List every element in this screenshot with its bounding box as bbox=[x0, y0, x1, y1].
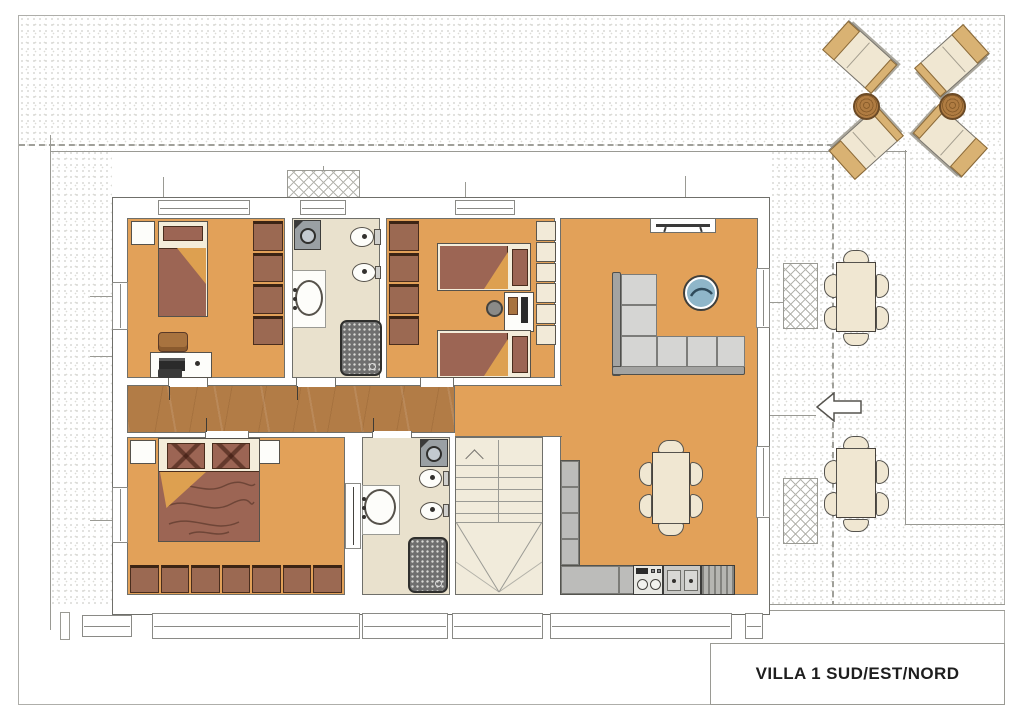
wardrobe-cell bbox=[252, 565, 281, 593]
window bbox=[82, 615, 132, 637]
boundary-line-left bbox=[50, 135, 51, 630]
sofa-seat bbox=[621, 274, 657, 305]
door-opening bbox=[372, 431, 412, 438]
plan-title: VILLA 1 SUD/EST/NORD bbox=[756, 664, 960, 684]
window bbox=[362, 613, 448, 639]
shower-drain bbox=[369, 363, 376, 370]
closet-shelves bbox=[536, 221, 556, 345]
double-bed bbox=[158, 438, 260, 542]
burner bbox=[650, 579, 661, 590]
stove-knob bbox=[657, 569, 661, 573]
window bbox=[300, 200, 346, 215]
drain bbox=[689, 579, 693, 583]
floor-plan: VILLA 1 SUD/EST/NORD bbox=[0, 0, 1024, 724]
shower bbox=[408, 537, 448, 593]
wardrobe bbox=[130, 565, 342, 593]
patio-chair bbox=[843, 436, 869, 449]
planter bbox=[783, 263, 818, 329]
chair bbox=[158, 369, 182, 378]
door-opening bbox=[420, 378, 454, 387]
window bbox=[152, 613, 360, 639]
leader-line bbox=[770, 415, 816, 416]
boundary-dashed-horizontal bbox=[19, 144, 833, 146]
single-bed bbox=[437, 243, 531, 291]
single-bed bbox=[437, 330, 531, 378]
planter bbox=[783, 478, 818, 544]
shelf-cell bbox=[536, 221, 556, 241]
toilet-tank bbox=[443, 471, 449, 486]
patio-chair bbox=[824, 274, 837, 298]
stair-winders bbox=[455, 522, 543, 594]
pillow bbox=[512, 249, 528, 286]
door-opening bbox=[168, 378, 208, 387]
tap bbox=[362, 497, 366, 501]
window bbox=[756, 268, 770, 328]
patio-chair bbox=[824, 492, 837, 516]
shelf-cell bbox=[536, 304, 556, 324]
round-side-table bbox=[939, 93, 966, 120]
wardrobe bbox=[253, 221, 283, 345]
wardrobe-cell bbox=[191, 565, 220, 593]
boundary-line-horizontal bbox=[50, 151, 907, 152]
window bbox=[452, 613, 543, 639]
bidet-fixture bbox=[443, 504, 449, 517]
entrance-arrow-icon bbox=[816, 392, 862, 422]
wardrobe-cell bbox=[389, 284, 419, 314]
window bbox=[112, 282, 128, 330]
patio-chair bbox=[843, 250, 869, 263]
stove-knob bbox=[651, 569, 655, 573]
door-opening bbox=[205, 431, 249, 438]
stair-divider bbox=[498, 440, 499, 522]
stove bbox=[633, 565, 663, 595]
desk bbox=[504, 292, 534, 332]
bidet-drain bbox=[362, 269, 367, 274]
shelf-cell bbox=[536, 283, 556, 303]
sofa-seat bbox=[687, 336, 717, 367]
wardrobe bbox=[389, 221, 419, 345]
step-stub bbox=[60, 612, 70, 640]
room-corridor bbox=[127, 385, 455, 433]
tap bbox=[362, 506, 366, 510]
dining-table bbox=[652, 452, 690, 524]
dining-chair bbox=[639, 494, 652, 518]
shower-drain bbox=[435, 580, 442, 587]
sofa-seat bbox=[621, 305, 657, 336]
dishwasher bbox=[701, 565, 735, 595]
deck-edge bbox=[770, 604, 1005, 611]
wardrobe-cell bbox=[253, 221, 283, 251]
sink bbox=[295, 280, 323, 316]
pillow bbox=[212, 443, 250, 469]
wardrobe-cell bbox=[389, 316, 419, 346]
wardrobe-cell bbox=[222, 565, 251, 593]
patio-chair bbox=[824, 460, 837, 484]
desk-lamp bbox=[508, 297, 518, 315]
wardrobe-cell bbox=[161, 565, 190, 593]
window bbox=[158, 200, 250, 215]
leader-line bbox=[90, 296, 112, 297]
window bbox=[756, 446, 770, 518]
toilet-drain bbox=[430, 475, 435, 480]
tap bbox=[362, 515, 366, 519]
washer-door bbox=[300, 228, 316, 244]
round-glass-table bbox=[683, 275, 719, 311]
sofa-seat bbox=[657, 336, 687, 367]
wardrobe-cell bbox=[389, 253, 419, 283]
washer-door bbox=[426, 446, 442, 462]
stove-controls bbox=[636, 568, 648, 574]
window bbox=[550, 613, 732, 639]
patio-table bbox=[836, 262, 876, 332]
window bbox=[745, 613, 763, 639]
shelf-cell bbox=[536, 242, 556, 262]
skylight bbox=[287, 170, 360, 198]
wardrobe-cell bbox=[253, 284, 283, 314]
door-leaf bbox=[206, 418, 207, 432]
tap bbox=[293, 288, 297, 292]
room-living-kitchen bbox=[560, 218, 758, 595]
toilet-tank bbox=[374, 229, 381, 245]
window bbox=[112, 487, 128, 543]
counter-cell bbox=[561, 461, 579, 487]
shelf-cell bbox=[536, 325, 556, 345]
boundary-dashed-vertical bbox=[832, 144, 834, 607]
toilet-drain bbox=[362, 234, 367, 239]
counter-cell bbox=[561, 566, 619, 594]
tap bbox=[293, 306, 297, 310]
drain bbox=[672, 579, 676, 583]
door-opening bbox=[296, 378, 336, 387]
tap bbox=[293, 297, 297, 301]
sofa-backrest bbox=[612, 272, 621, 376]
door-leaf bbox=[169, 386, 170, 400]
glass-top bbox=[687, 279, 715, 307]
door-leaf-panel bbox=[345, 483, 361, 549]
bidet-drain bbox=[430, 507, 435, 512]
desk-lamp bbox=[195, 361, 200, 366]
door-line bbox=[353, 487, 354, 545]
wardrobe-cell bbox=[313, 565, 342, 593]
pillow bbox=[167, 443, 205, 469]
washing-machine bbox=[294, 220, 321, 250]
kitchen-counter-column bbox=[560, 460, 580, 566]
sofa-backrest bbox=[612, 366, 745, 375]
patio-table bbox=[836, 448, 876, 518]
wardrobe-cell bbox=[389, 221, 419, 251]
counter-cell bbox=[561, 513, 579, 539]
washing-machine bbox=[420, 439, 448, 467]
leader-line bbox=[90, 356, 112, 357]
dining-chair bbox=[658, 440, 684, 453]
wardrobe-cell bbox=[253, 316, 283, 346]
shelf-cell bbox=[536, 263, 556, 283]
wardrobe-cell bbox=[130, 565, 159, 593]
kitchen-sink bbox=[663, 565, 701, 595]
round-side-table bbox=[853, 93, 880, 120]
desk-stool bbox=[486, 300, 503, 317]
counter-cell bbox=[561, 539, 579, 565]
pillow bbox=[512, 336, 528, 373]
room-hall bbox=[455, 385, 562, 437]
single-bed bbox=[158, 221, 208, 317]
sofa-seat bbox=[717, 336, 745, 367]
shower bbox=[340, 320, 382, 376]
sofa-seat bbox=[621, 336, 657, 367]
sink bbox=[364, 489, 396, 525]
patio-chair bbox=[824, 306, 837, 330]
pillow bbox=[163, 226, 203, 241]
stair-treads bbox=[456, 465, 542, 522]
dining-chair bbox=[639, 462, 652, 486]
yard-left bbox=[50, 150, 112, 607]
wardrobe-cell bbox=[283, 565, 312, 593]
monitor bbox=[521, 297, 528, 323]
yard-right-border bbox=[905, 150, 1005, 525]
burner bbox=[637, 579, 648, 590]
door-leaf bbox=[297, 386, 298, 400]
bidet-fixture bbox=[375, 266, 381, 279]
nightstand bbox=[131, 221, 155, 245]
counter-cell bbox=[561, 487, 579, 513]
window bbox=[455, 200, 515, 215]
leader-line bbox=[90, 520, 112, 521]
door-leaf bbox=[373, 418, 374, 432]
desk-chair bbox=[158, 332, 188, 352]
wardrobe-cell bbox=[253, 253, 283, 283]
title-block: VILLA 1 SUD/EST/NORD bbox=[710, 643, 1005, 705]
nightstand bbox=[130, 440, 156, 464]
